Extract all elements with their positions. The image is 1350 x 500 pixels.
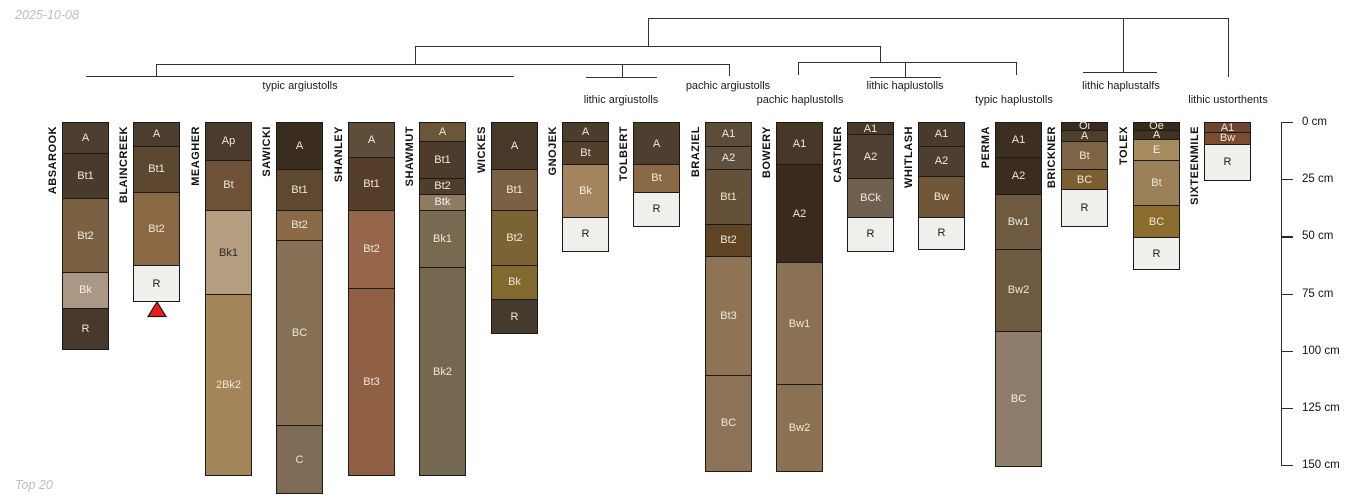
horizon-Bt: Bt bbox=[1134, 160, 1179, 206]
horizon-A2: A2 bbox=[919, 146, 964, 176]
dendrogram-segment bbox=[729, 64, 730, 76]
horizon-Bk: Bk bbox=[63, 272, 108, 309]
dendrogram-segment bbox=[798, 62, 799, 75]
horizon-A: A bbox=[563, 123, 608, 141]
dendrogram-segment bbox=[870, 77, 941, 78]
horizon-Bw1: Bw1 bbox=[777, 262, 822, 383]
horizon-Bt2: Bt2 bbox=[492, 210, 537, 265]
horizon-Bt: Bt bbox=[1062, 141, 1107, 168]
horizon-A2: A2 bbox=[706, 146, 751, 169]
horizon-A1: A1 bbox=[706, 123, 751, 146]
dendrogram-segment bbox=[1083, 72, 1157, 73]
horizon-Bk: Bk bbox=[563, 164, 608, 217]
dendrogram-segment bbox=[1228, 18, 1229, 77]
horizon-Bk1: Bk1 bbox=[420, 210, 465, 267]
horizon-R: R bbox=[492, 299, 537, 333]
depth-tick-label: 150 cm bbox=[1302, 459, 1340, 471]
horizon-R: R bbox=[63, 308, 108, 349]
profile-column: ABt1Bt2R bbox=[133, 122, 180, 302]
date-watermark: 2025-10-08 bbox=[15, 8, 79, 22]
profile-column: A1A2Bt1Bt2Bt3BC bbox=[705, 122, 752, 472]
dendrogram-segment bbox=[86, 76, 514, 77]
profile-column: ABtR bbox=[633, 122, 680, 227]
horizon-Bw: Bw bbox=[919, 176, 964, 217]
outlier-marker-triangle bbox=[147, 301, 167, 318]
dendrogram-segment bbox=[415, 46, 416, 64]
profile-column: ABt1Bt2BCC bbox=[276, 122, 323, 494]
horizon-A: A bbox=[277, 123, 322, 169]
depth-tick-label: 125 cm bbox=[1302, 402, 1340, 414]
profile-column: A1A2Bw1Bw2BC bbox=[995, 122, 1042, 467]
horizon-BCk: BCk bbox=[848, 178, 893, 217]
soil-profile-dendrogram-plot: 2025-10-08 Top 20 typic argiustollslithi… bbox=[0, 0, 1350, 500]
horizon-Bt2: Bt2 bbox=[63, 198, 108, 271]
depth-tick-label: 75 cm bbox=[1302, 288, 1333, 300]
depth-tick bbox=[1281, 351, 1293, 352]
cluster-label: typic haplustolls bbox=[904, 94, 1124, 106]
profile-column: OiABtBCR bbox=[1061, 122, 1108, 227]
depth-tick bbox=[1281, 179, 1293, 180]
horizon-Oi: Oi bbox=[1062, 123, 1107, 130]
horizon-Bt1: Bt1 bbox=[420, 141, 465, 178]
depth-tick-label: 0 cm bbox=[1302, 116, 1327, 128]
dendrogram-segment bbox=[156, 64, 729, 65]
horizon-R: R bbox=[563, 217, 608, 251]
profile-column: ABtBkR bbox=[562, 122, 609, 252]
horizon-BC: BC bbox=[996, 331, 1041, 466]
horizon-Bt2: Bt2 bbox=[420, 178, 465, 194]
horizon-E: E bbox=[1134, 139, 1179, 160]
dendrogram-segment bbox=[1016, 62, 1017, 75]
dendrogram-segment bbox=[156, 64, 157, 76]
horizon-Bt1: Bt1 bbox=[349, 157, 394, 210]
horizon-Bw2: Bw2 bbox=[777, 384, 822, 471]
horizon-Bt3: Bt3 bbox=[349, 288, 394, 476]
horizon-Bt1: Bt1 bbox=[63, 153, 108, 199]
horizon-A: A bbox=[1062, 130, 1107, 141]
dendrogram-segment bbox=[586, 77, 657, 78]
profile-column: ABt1Bt2BkR bbox=[62, 122, 109, 350]
horizon-Bk: Bk bbox=[492, 265, 537, 299]
horizon-Bw1: Bw1 bbox=[996, 194, 1041, 249]
profile-column: ABt1Bt2BkR bbox=[491, 122, 538, 334]
horizon-R: R bbox=[919, 217, 964, 249]
horizon-A: A bbox=[492, 123, 537, 169]
horizon-R: R bbox=[848, 217, 893, 251]
horizon-A: A bbox=[134, 123, 179, 146]
horizon-A2: A2 bbox=[777, 164, 822, 262]
dendrogram-segment bbox=[880, 46, 881, 62]
horizon-Bw2: Bw2 bbox=[996, 249, 1041, 331]
horizon-Bt: Bt bbox=[206, 160, 251, 210]
horizon-A: A bbox=[63, 123, 108, 153]
horizon-Bt1: Bt1 bbox=[492, 169, 537, 210]
profile-column: ApBtBk12Bk2 bbox=[205, 122, 252, 476]
horizon-Bt2: Bt2 bbox=[706, 224, 751, 256]
cluster-label: lithic haplustolls bbox=[795, 80, 1015, 92]
depth-tick-label: 25 cm bbox=[1302, 173, 1333, 185]
horizon-Btk: Btk bbox=[420, 194, 465, 210]
horizon-BC: BC bbox=[277, 240, 322, 425]
profile-column: A1BwR bbox=[1204, 122, 1251, 181]
horizon-C: C bbox=[277, 425, 322, 494]
horizon-Bt2: Bt2 bbox=[349, 210, 394, 288]
horizon-A1: A1 bbox=[1205, 123, 1250, 132]
horizon-Bk1: Bk1 bbox=[206, 210, 251, 295]
horizon-R: R bbox=[1205, 144, 1250, 181]
footer-note: Top 20 bbox=[15, 478, 53, 492]
horizon-A1: A1 bbox=[848, 123, 893, 134]
horizon-Bt1: Bt1 bbox=[134, 146, 179, 192]
profile-column: A1A2BCkR bbox=[847, 122, 894, 252]
dendrogram-segment bbox=[622, 64, 623, 77]
horizon-Bt: Bt bbox=[634, 164, 679, 191]
horizon-R: R bbox=[1062, 189, 1107, 226]
dendrogram-segment bbox=[1123, 18, 1124, 72]
dendrogram-segment bbox=[648, 18, 1228, 19]
horizon-R: R bbox=[634, 192, 679, 226]
horizon-A2: A2 bbox=[848, 134, 893, 177]
horizon-R: R bbox=[134, 265, 179, 302]
horizon-Ap: Ap bbox=[206, 123, 251, 160]
cluster-label: lithic ustorthents bbox=[1118, 94, 1338, 106]
dendrogram-segment bbox=[798, 62, 1016, 63]
depth-tick bbox=[1281, 408, 1293, 409]
dendrogram-segment bbox=[905, 62, 906, 77]
profile-column: ABt1Bt2Bt3 bbox=[348, 122, 395, 476]
depth-tick bbox=[1281, 122, 1293, 123]
depth-tick-label: 100 cm bbox=[1302, 345, 1340, 357]
dendrogram-segment bbox=[415, 46, 880, 47]
horizon-A2: A2 bbox=[996, 157, 1041, 194]
horizon-A1: A1 bbox=[777, 123, 822, 164]
horizon-Bk2: Bk2 bbox=[420, 267, 465, 475]
cluster-label: lithic haplustalfs bbox=[1011, 80, 1231, 92]
horizon-BC: BC bbox=[1134, 205, 1179, 237]
depth-tick bbox=[1281, 465, 1293, 466]
horizon-Bt2: Bt2 bbox=[134, 192, 179, 265]
depth-tick bbox=[1281, 236, 1293, 237]
horizon-A: A bbox=[420, 123, 465, 141]
horizon-2Bk2: 2Bk2 bbox=[206, 294, 251, 475]
cluster-label: typic argiustolls bbox=[190, 80, 410, 92]
horizon-A1: A1 bbox=[919, 123, 964, 146]
dendrogram-segment bbox=[648, 18, 649, 46]
horizon-Bt2: Bt2 bbox=[277, 210, 322, 240]
profile-column: A1A2BwR bbox=[918, 122, 965, 250]
horizon-A: A bbox=[349, 123, 394, 157]
horizon-BC: BC bbox=[1062, 169, 1107, 190]
horizon-Bt1: Bt1 bbox=[277, 169, 322, 210]
depth-tick-label: 50 cm bbox=[1302, 230, 1333, 242]
profile-column: A1A2Bw1Bw2 bbox=[776, 122, 823, 472]
horizon-Bt: Bt bbox=[563, 141, 608, 164]
cluster-label: pachic haplustolls bbox=[690, 94, 910, 106]
profile-column: ABt1Bt2BtkBk1Bk2 bbox=[419, 122, 466, 476]
horizon-R: R bbox=[1134, 237, 1179, 269]
depth-tick bbox=[1281, 294, 1293, 295]
horizon-A1: A1 bbox=[996, 123, 1041, 157]
horizon-BC: BC bbox=[706, 375, 751, 471]
horizon-Bt3: Bt3 bbox=[706, 256, 751, 375]
horizon-Bw: Bw bbox=[1205, 132, 1250, 143]
horizon-A: A bbox=[634, 123, 679, 164]
horizon-A: A bbox=[1134, 130, 1179, 139]
horizon-Bt1: Bt1 bbox=[706, 169, 751, 224]
profile-column: OeAEBtBCR bbox=[1133, 122, 1180, 270]
